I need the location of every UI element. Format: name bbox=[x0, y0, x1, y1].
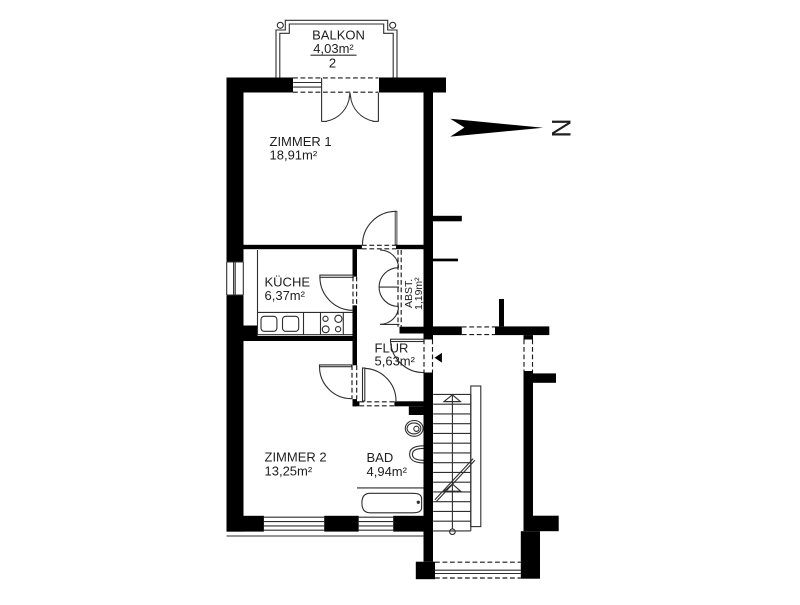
svg-text:13,25m²: 13,25m² bbox=[265, 464, 313, 479]
svg-text:ZIMMER 2: ZIMMER 2 bbox=[265, 450, 327, 465]
svg-text:5,63m²: 5,63m² bbox=[375, 354, 416, 369]
svg-text:2: 2 bbox=[329, 56, 336, 71]
svg-text:BAD: BAD bbox=[367, 450, 394, 465]
svg-text:4,94m²: 4,94m² bbox=[367, 464, 408, 479]
svg-text:N: N bbox=[546, 118, 576, 137]
svg-text:1,19m²: 1,19m² bbox=[413, 277, 425, 310]
svg-text:4,03m²: 4,03m² bbox=[313, 41, 354, 56]
svg-text:18,91m²: 18,91m² bbox=[270, 148, 318, 163]
svg-text:6,37m²: 6,37m² bbox=[265, 288, 306, 303]
